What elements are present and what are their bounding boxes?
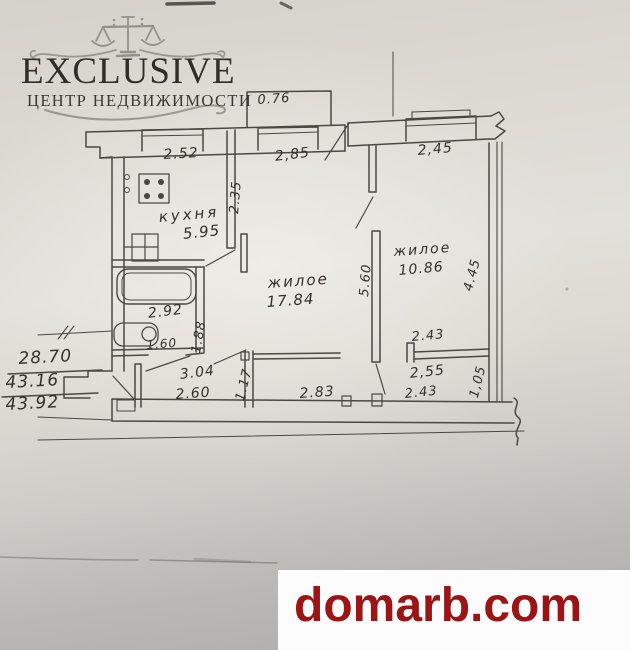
- dim-room2-bottom: 2.43: [411, 327, 445, 345]
- dim-kitchen-window: 2.52: [163, 145, 199, 163]
- dim-toilet-width: 1.60: [146, 336, 178, 352]
- area-total-living: 28.70: [18, 346, 73, 369]
- area-total-full: 43.92: [5, 392, 60, 415]
- room-area-living1: 17.84: [266, 290, 315, 311]
- rooms-divider-wall: [369, 146, 376, 192]
- vent-icon: [125, 175, 130, 180]
- agency-logo-subtitle: ЦЕНТР НЕДВИЖИМОСТИ: [27, 91, 252, 111]
- wall-top-left-band: [86, 132, 112, 158]
- break-symbol: [58, 326, 74, 339]
- area-total-mid: 43.16: [5, 370, 60, 393]
- agency-logo-title: EXCLUSIVE: [21, 50, 236, 93]
- dim-divider-length: 5.60: [357, 263, 375, 297]
- torn-edge: [514, 398, 520, 445]
- watermark-text: domarb.com: [278, 570, 630, 633]
- edge-mark: [167, 3, 214, 4]
- bathtub-icon: [117, 269, 196, 304]
- sink-icon: [124, 234, 158, 261]
- watermark-box: domarb.com: [278, 570, 630, 650]
- wall-bottom-band: [112, 399, 514, 423]
- rooms-door-swing: [356, 197, 373, 228]
- entrance-door-swing: [113, 376, 134, 399]
- paper-crease: [0, 557, 138, 560]
- dim-kitchen-depth: 2.35: [227, 180, 245, 214]
- closet-door-swing: [376, 364, 385, 394]
- stove-icon: [139, 174, 169, 203]
- dim-balcony: 0.76: [257, 91, 291, 108]
- dim-corridor-width: 2.83: [299, 384, 335, 402]
- listing-photo: EXCLUSIVE ЦЕНТР НЕДВИЖИМОСТИ кухня 5.95 …: [0, 0, 630, 650]
- wall-break-mark: [489, 112, 505, 139]
- kitchen-door-swing: [206, 250, 235, 266]
- dim-hall-width: 2.60: [175, 385, 211, 403]
- dim-room2-window: 2,45: [417, 140, 453, 159]
